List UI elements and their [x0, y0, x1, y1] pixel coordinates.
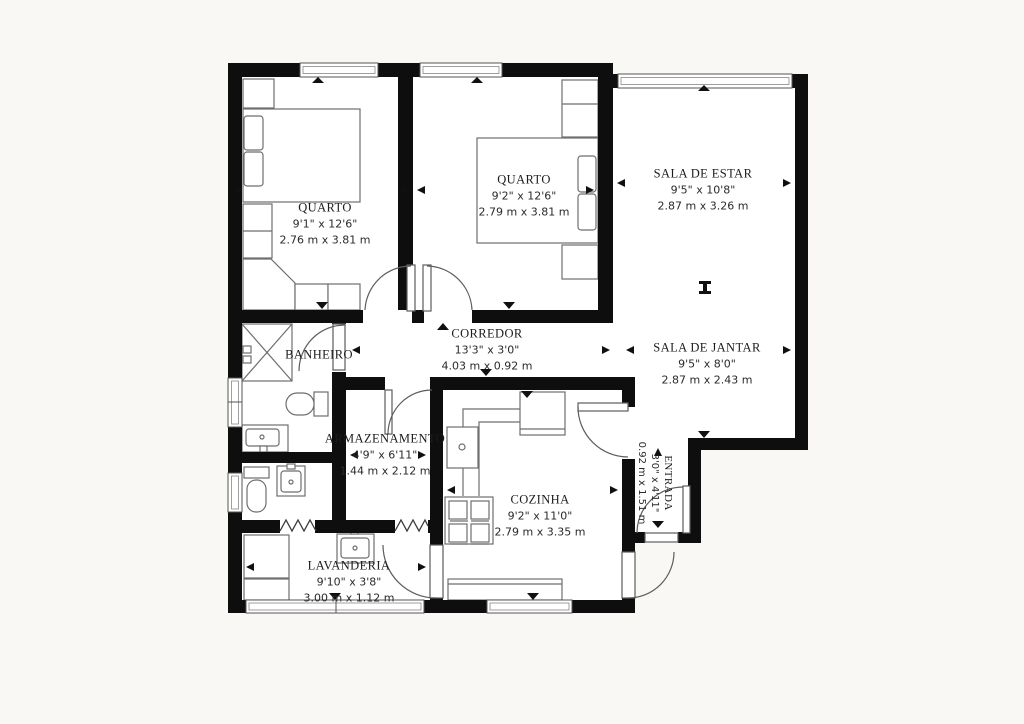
wall-segment — [228, 452, 346, 463]
window — [246, 600, 424, 613]
wall-segment — [688, 438, 808, 450]
wall-segment — [412, 310, 424, 323]
window — [618, 74, 792, 88]
toilet-tank — [244, 467, 269, 478]
wall-segment — [622, 598, 635, 613]
wall-segment — [795, 74, 808, 450]
wall-segment — [315, 520, 395, 533]
wall-segment — [228, 600, 246, 613]
window — [228, 378, 242, 427]
wall-segment — [622, 459, 635, 552]
burner — [449, 501, 467, 519]
door-threshold — [645, 533, 678, 542]
wall-segment — [332, 310, 346, 324]
closet — [562, 80, 598, 137]
toilet-bowl — [247, 480, 266, 512]
floor-plan-drawing — [0, 0, 1024, 724]
door-exterior — [622, 552, 674, 598]
door-leaf — [333, 324, 345, 370]
wall-segment — [635, 532, 645, 543]
floor-plan: QUARTO 9'1" x 12'6" 2.76 m x 3.81 m QUAR… — [0, 0, 1024, 724]
burner — [471, 524, 489, 542]
counter-bottom — [448, 579, 562, 600]
pillow — [244, 116, 263, 150]
door-leaf — [423, 265, 431, 311]
wall-segment — [424, 600, 487, 613]
wall-segment — [430, 377, 443, 545]
window — [228, 473, 242, 512]
faucet — [287, 464, 295, 469]
shower-valve — [243, 346, 251, 353]
window — [487, 600, 572, 613]
door-leaf — [622, 552, 635, 598]
shower-valve — [243, 356, 251, 363]
toilet-tank — [314, 392, 328, 416]
drain — [289, 480, 293, 484]
washer-shelf — [244, 579, 289, 600]
wall-segment — [228, 520, 280, 533]
pillow — [578, 194, 596, 230]
wall-segment — [678, 532, 701, 543]
door-leaf — [407, 265, 415, 311]
burner — [471, 501, 489, 519]
wall-segment — [472, 310, 613, 323]
toilet-bowl — [286, 393, 314, 415]
window — [420, 63, 502, 77]
dishwasher — [447, 427, 478, 468]
door-leaf — [683, 486, 690, 533]
nightstand — [243, 79, 274, 108]
burner — [449, 524, 467, 542]
wall-segment — [228, 63, 242, 378]
faucet — [260, 446, 267, 452]
wall-segment — [598, 63, 613, 320]
drain — [260, 435, 264, 439]
washer — [244, 535, 289, 578]
door-leaf — [578, 403, 628, 411]
wall-segment — [502, 63, 613, 77]
wall-segment — [228, 427, 242, 473]
drain — [353, 546, 357, 550]
wall-segment — [346, 377, 385, 390]
wall-segment — [430, 377, 635, 390]
closet — [562, 245, 598, 279]
pillow — [244, 152, 263, 186]
door-leaf — [430, 545, 443, 598]
window — [300, 63, 378, 77]
cabinet — [328, 284, 360, 310]
